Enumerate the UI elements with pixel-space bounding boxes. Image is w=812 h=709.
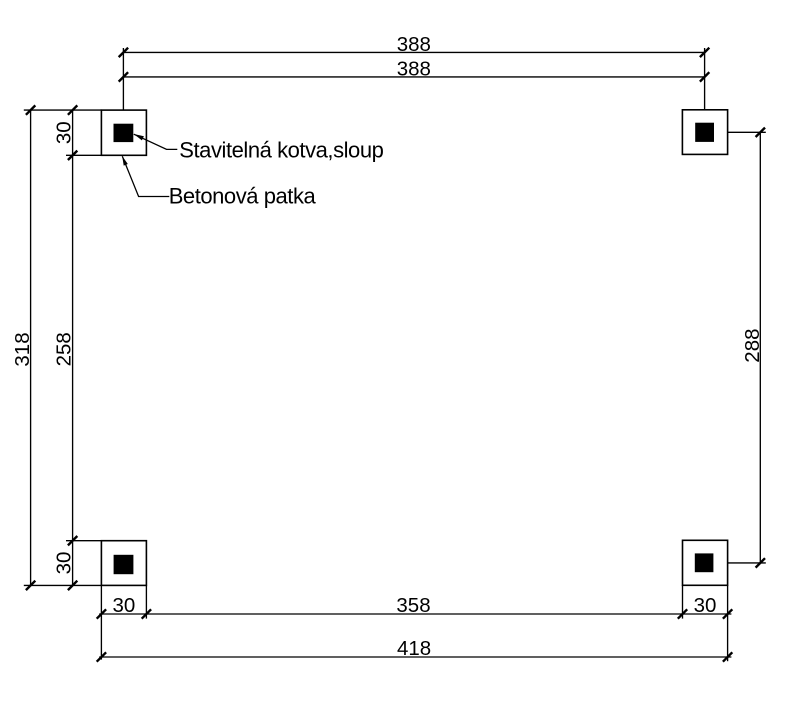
- svg-text:258: 258: [53, 332, 76, 366]
- svg-text:30: 30: [694, 594, 717, 617]
- svg-text:30: 30: [112, 594, 135, 617]
- svg-text:418: 418: [397, 637, 431, 660]
- svg-text:30: 30: [53, 121, 76, 144]
- svg-text:288: 288: [741, 328, 764, 362]
- svg-text:318: 318: [11, 332, 34, 366]
- svg-text:388: 388: [397, 33, 431, 56]
- svg-text:388: 388: [397, 58, 431, 81]
- svg-text:Stavitelná kotva,sloup: Stavitelná kotva,sloup: [179, 138, 383, 163]
- svg-text:Betonová patka: Betonová patka: [169, 184, 317, 209]
- svg-text:30: 30: [53, 552, 76, 575]
- svg-text:358: 358: [396, 594, 430, 617]
